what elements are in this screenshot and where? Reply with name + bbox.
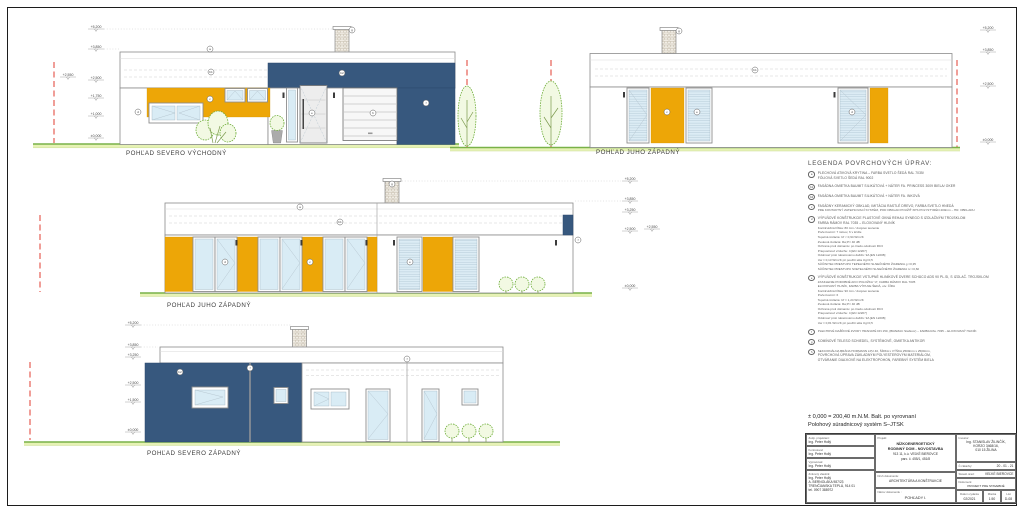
legend-item: cFASÁDNY KERAMICKÝ OBKLAD, IMITÁCIA RAST… xyxy=(808,204,1016,213)
chimney xyxy=(293,329,307,348)
legend-item-lines: FASÁDNA OMIETKA BAUMIT SILIKÁTOVÁ + NÁTE… xyxy=(818,184,1016,191)
wall-lamp xyxy=(834,92,836,98)
material-marker-letter: b1 xyxy=(338,220,342,224)
legend-item: gKOMÍNOVÉ TELESO SCHIEDEL, SYSTÉMOVÉ, OM… xyxy=(808,339,1016,346)
legend-item-lines: VÝPLŇOVÉ KONŠTRUKCIE VSTUPNÉ HLINÍKOVÉ D… xyxy=(818,275,1016,325)
level-mark-text: +3,250 xyxy=(625,208,636,212)
level-mark-text: +2,500 xyxy=(91,76,102,80)
level-mark-text: ±0,000 xyxy=(128,428,139,432)
level-mark-text: +1,750 xyxy=(91,94,102,98)
level-mark-tick xyxy=(94,138,97,140)
material-marker-letter: f xyxy=(407,357,408,361)
level-mark-text: +5,200 xyxy=(128,321,139,325)
level-mark-text: +2,500 xyxy=(983,82,994,86)
datum-note: ± 0,000 = 200,40 m.N.M. Balt. po vyrovna… xyxy=(808,413,916,429)
elevation-north-west xyxy=(24,327,560,446)
material-marker-letter: e xyxy=(311,111,313,115)
legend-line: PRE KONTAKTNÝ ZATEPĽOVACÍ SYSTÉM, POD OB… xyxy=(818,208,1016,213)
legend-item-lines: FASÁDNA OMIETKA BAUMIT SILIKÁTOVÁ + NÁTE… xyxy=(818,194,1016,201)
level-mark-tick xyxy=(94,80,97,82)
level-mark-text: +2,550 xyxy=(63,73,74,77)
level-mark-tick xyxy=(986,86,989,88)
material-marker-letter: b2 xyxy=(178,370,182,374)
level-mark-text: +5,200 xyxy=(91,25,102,29)
legend-item: aPLECHOVÁ ATIKOVÁ KRYTINA – FARBA SVETLO… xyxy=(808,171,1016,180)
level-mark-tick xyxy=(986,52,989,54)
legend-item-lines: FASÁDNY KERAMICKÝ OBKLAD, IMITÁCIA RASTL… xyxy=(818,204,1016,213)
legend-item-key: d xyxy=(808,216,815,223)
level-mark-tick xyxy=(650,229,653,231)
legend-line: FASÁDNA OMIETKA BAUMIT SILIKÁTOVÁ + NÁTE… xyxy=(818,194,1016,199)
level-mark-text: ±0,000 xyxy=(625,284,636,288)
elevation-label-south-west-small: POHĽAD JUHO ZÁPADNÝ xyxy=(596,149,680,156)
cell-document-stage: Dokument: PROJEKT PRE STAVEBNÉ POVOLENIE xyxy=(956,478,1016,490)
chimney xyxy=(662,30,676,54)
legend-items: aPLECHOVÁ ATIKOVÁ KRYTINA – FARBA SVETLO… xyxy=(808,171,1016,363)
cell-issue-date: Dátum vydania 02/2021 xyxy=(956,490,983,503)
glass-door-pair xyxy=(323,237,367,292)
legend-item-key: c xyxy=(808,204,815,211)
wall-lamp xyxy=(623,92,625,98)
level-mark-tick xyxy=(131,325,134,327)
tree xyxy=(540,81,562,146)
attic-band xyxy=(165,203,573,235)
shrub-row xyxy=(499,277,545,293)
legend-item: b1FASÁDNA OMIETKA BAUMIT SILIKÁTOVÁ + NÁ… xyxy=(808,184,1016,191)
material-marker-letter: g xyxy=(391,182,393,186)
yellow-cladding xyxy=(651,88,684,143)
legend-item-lines: VÝPLŇOVÉ KONŠTRUKCIE PLASTOVÉ OKNÁ REHAU… xyxy=(818,216,1016,271)
wall-lamp xyxy=(333,93,335,99)
drawing-sheet: +5,200+3,850+2,550+2,500+1,750+1,000±0,0… xyxy=(0,0,1024,512)
level-mark-text: +2,500 xyxy=(128,381,139,385)
material-marker-letter: a xyxy=(209,47,211,51)
level-mark-text: +1,500 xyxy=(128,398,139,402)
legend-item: hSEKCIONÁLNA BRÁNA HORMANN LPU 40, ŠÍRKA… xyxy=(808,349,1016,363)
cell-designer: Zodp. projektant: Ing. Peter Hollý xyxy=(806,434,875,446)
tree xyxy=(458,86,476,146)
level-mark-tick xyxy=(131,347,134,349)
level-mark-tick xyxy=(986,142,989,144)
cell-order-number: Č.zákazky: 20 - 01 - 21 xyxy=(956,462,1016,470)
material-marker-letter: g xyxy=(678,29,680,33)
level-mark-tick xyxy=(628,201,631,203)
level-mark-text: +3,850 xyxy=(983,48,994,52)
material-marker-letter: f xyxy=(578,238,579,242)
level-mark-tick xyxy=(131,357,134,359)
legend-line: OTVÁRANIE DIAĽKOVÉ NA ELEKTROPOHON, FARE… xyxy=(818,358,1016,363)
level-mark-tick xyxy=(986,30,989,32)
title-block: Zodp. projektant: Ing. Peter Hollý Kontr… xyxy=(805,433,1017,504)
level-mark-tick xyxy=(131,385,134,387)
legend-item-key: a xyxy=(808,171,815,178)
door-handle xyxy=(303,99,305,129)
level-mark-text: +3,850 xyxy=(128,343,139,347)
cell-drawn-by: Vypracoval: Ing. Peter Hollý xyxy=(806,458,875,470)
legend-item-lines: SEKCIONÁLNA BRÁNA HORMANN LPU 40, ŠÍRKA … xyxy=(818,349,1016,363)
elevation-label-north-east: POHĽAD SEVERO VÝCHODNÝ xyxy=(126,150,227,157)
material-marker-letter: e xyxy=(696,110,698,114)
level-mark-text: +2,550 xyxy=(647,225,658,229)
legend-item-key: e xyxy=(808,275,815,282)
level-mark-text: +3,250 xyxy=(128,353,139,357)
material-marker-letter: b2 xyxy=(340,71,344,75)
cell-scale: Mierka 1:50 xyxy=(983,490,1001,503)
legend-item: fPLECHOVÉ DAŽĎOVÉ ZVODY HRANATÉ DN 150, … xyxy=(808,329,1016,336)
yellow-cladding xyxy=(870,88,888,143)
level-mark-text: +5,200 xyxy=(983,26,994,30)
level-mark-text: ±0,000 xyxy=(983,138,994,142)
elevation-south-west-large xyxy=(40,179,592,297)
level-mark-tick xyxy=(94,116,97,118)
legend-item-key: b2 xyxy=(808,194,815,201)
legend-line: FÓLIOVÁ SVETLO ŠEDÁ RAL 9002 xyxy=(818,176,1016,181)
cell-checked-by: Kontroloval: Ing. Peter Hollý xyxy=(806,446,875,458)
cell-doc-type: Druh dokumentu: ARCHITEKTÚRA A KONŠTRUKC… xyxy=(875,472,956,488)
legend-item-lines: PLECHOVÉ DAŽĎOVÉ ZVODY HRANATÉ DN 150, (… xyxy=(818,329,1016,336)
blue-facade-strip xyxy=(563,215,573,235)
shrub-row xyxy=(445,424,493,442)
level-mark-tick xyxy=(94,98,97,100)
material-marker-letter: f xyxy=(250,366,251,370)
legend-item-key: f xyxy=(808,329,815,336)
legend-line: SÚČINITEĽ PRESTUPU SVETELNÉHO SLNEČNÉHO … xyxy=(818,267,1016,272)
material-marker-letter: h xyxy=(372,111,374,115)
attic-band xyxy=(590,54,952,88)
cell-project: Projekt: NÍZKOENERGETICKÝ RODINNÝ DOM - … xyxy=(875,434,956,472)
material-marker-letter: a xyxy=(299,205,301,209)
legend-item-lines: PLECHOVÁ ATIKOVÁ KRYTINA – FARBA SVETLO … xyxy=(818,171,1016,180)
legend-item-key: g xyxy=(808,339,815,346)
legend-line: Uw = 0,81 W/m²K pri použití skla Ug=0,5 xyxy=(818,321,1016,326)
material-marker-letter: d xyxy=(224,260,226,264)
level-mark-text: +3,850 xyxy=(625,197,636,201)
glass-door-pair xyxy=(193,237,237,292)
material-marker-letter: f xyxy=(426,101,427,105)
material-marker-letter: e xyxy=(409,260,411,264)
material-marker-letter: b1 xyxy=(753,68,757,72)
level-mark-tick xyxy=(66,77,69,79)
chimney xyxy=(335,29,349,53)
legend-line: VÝPLŇOVÉ KONŠTRUKCIE VSTUPNÉ HLINÍKOVÉ D… xyxy=(818,275,1016,280)
material-marker-letter: d xyxy=(851,110,853,114)
legend-line: KOMÍNOVÉ TELESO SCHIEDEL, SYSTÉMOVÉ, OMI… xyxy=(818,339,1016,344)
surface-finish-legend: LEGENDA POVRCHOVÝCH ÚPRAV: aPLECHOVÁ ATI… xyxy=(808,160,1016,366)
legend-item: dVÝPLŇOVÉ KONŠTRUKCIE PLASTOVÉ OKNÁ REHA… xyxy=(808,216,1016,271)
legend-item-key: b1 xyxy=(808,184,815,191)
datum-line-1: ± 0,000 = 200,40 m.N.M. Balt. po vyrovna… xyxy=(808,413,916,421)
level-mark-text: ±0,000 xyxy=(91,134,102,138)
legend-item: eVÝPLŇOVÉ KONŠTRUKCIE VSTUPNÉ HLINÍKOVÉ … xyxy=(808,275,1016,325)
level-mark-tick xyxy=(628,231,631,233)
legend-item-key: h xyxy=(808,349,815,356)
material-marker-letter: b1 xyxy=(209,70,213,74)
level-mark-text: +3,850 xyxy=(91,45,102,49)
level-mark-tick xyxy=(131,402,134,404)
material-marker-letter: d xyxy=(137,110,139,114)
glass-door-pair xyxy=(258,237,302,292)
elevation-label-north-west: POHĽAD SEVERO ZÁPADNÝ xyxy=(147,450,241,457)
blue-facade-panel xyxy=(268,63,455,88)
cell-investor: Investor: Ing. STANISLAV ŽILINČÍK, KORZO… xyxy=(956,434,1016,462)
level-mark-text: +2,500 xyxy=(625,227,636,231)
cell-doc-name: Názov dokumentu : POHĽADY I. xyxy=(875,488,956,503)
level-mark-tick xyxy=(628,181,631,183)
attic-band xyxy=(160,347,503,363)
legend-item: b2FASÁDNA OMIETKA BAUMIT SILIKÁTOVÁ + NÁ… xyxy=(808,194,1016,201)
elevation-label-south-west-large: POHĽAD JUHO ZÁPADNÝ xyxy=(167,302,251,309)
level-mark-tick xyxy=(94,49,97,51)
datum-line-2: Polohový súradnicový systém S–JTSK xyxy=(808,421,916,429)
level-mark-tick xyxy=(628,288,631,290)
legend-line: FASÁDNA OMIETKA BAUMIT SILIKÁTOVÁ + NÁTE… xyxy=(818,184,1016,189)
level-mark-tick xyxy=(94,29,97,31)
wall-lamp xyxy=(283,93,285,99)
legend-title: LEGENDA POVRCHOVÝCH ÚPRAV: xyxy=(808,160,1016,167)
level-mark-text: +1,000 xyxy=(91,112,102,116)
legend-item-lines: KOMÍNOVÉ TELESO SCHIEDEL, SYSTÉMOVÉ, OMI… xyxy=(818,339,1016,346)
legend-line: PLECHOVÉ DAŽĎOVÉ ZVODY HRANATÉ DN 150, (… xyxy=(818,329,1016,334)
level-mark-tick xyxy=(131,432,134,434)
level-mark-tick xyxy=(628,212,631,214)
level-mark-text: +5,200 xyxy=(625,177,636,181)
cell-building-office: Staveb.úrad: VEĽKÉ BIEROVCE xyxy=(956,470,1016,478)
elevation-south-west-small xyxy=(450,28,960,152)
cell-firm: Zmluvný vlastník: Ing. Peter Hollý A. BE… xyxy=(806,470,875,503)
blue-facade-corner xyxy=(397,88,455,145)
cell-sheet-number: List D-08 xyxy=(1001,490,1016,503)
material-marker-letter: g xyxy=(351,28,353,32)
